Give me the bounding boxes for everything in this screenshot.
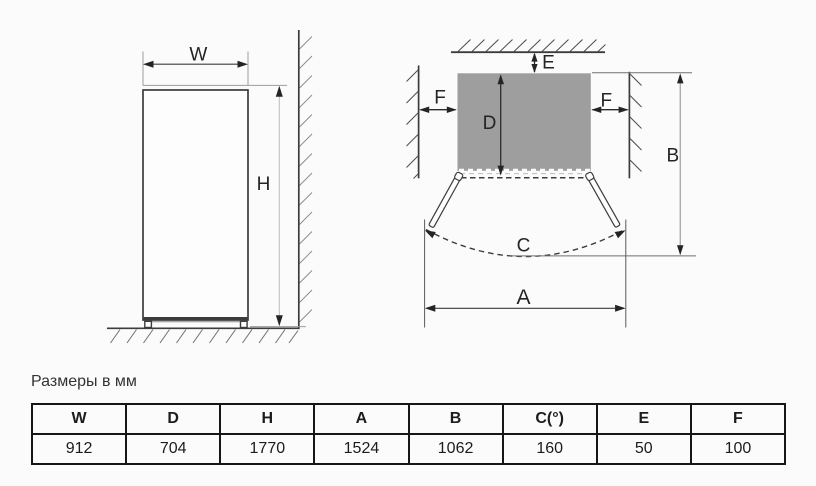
svg-text:F: F	[600, 90, 612, 111]
svg-text:W: W	[189, 44, 207, 65]
svg-text:E: E	[542, 53, 555, 74]
svg-text:D: D	[483, 113, 497, 134]
svg-text:C: C	[517, 236, 531, 257]
svg-text:B: B	[666, 146, 679, 167]
svg-text:F: F	[434, 88, 446, 109]
svg-text:H: H	[257, 174, 271, 195]
svg-text:A: A	[516, 286, 530, 309]
